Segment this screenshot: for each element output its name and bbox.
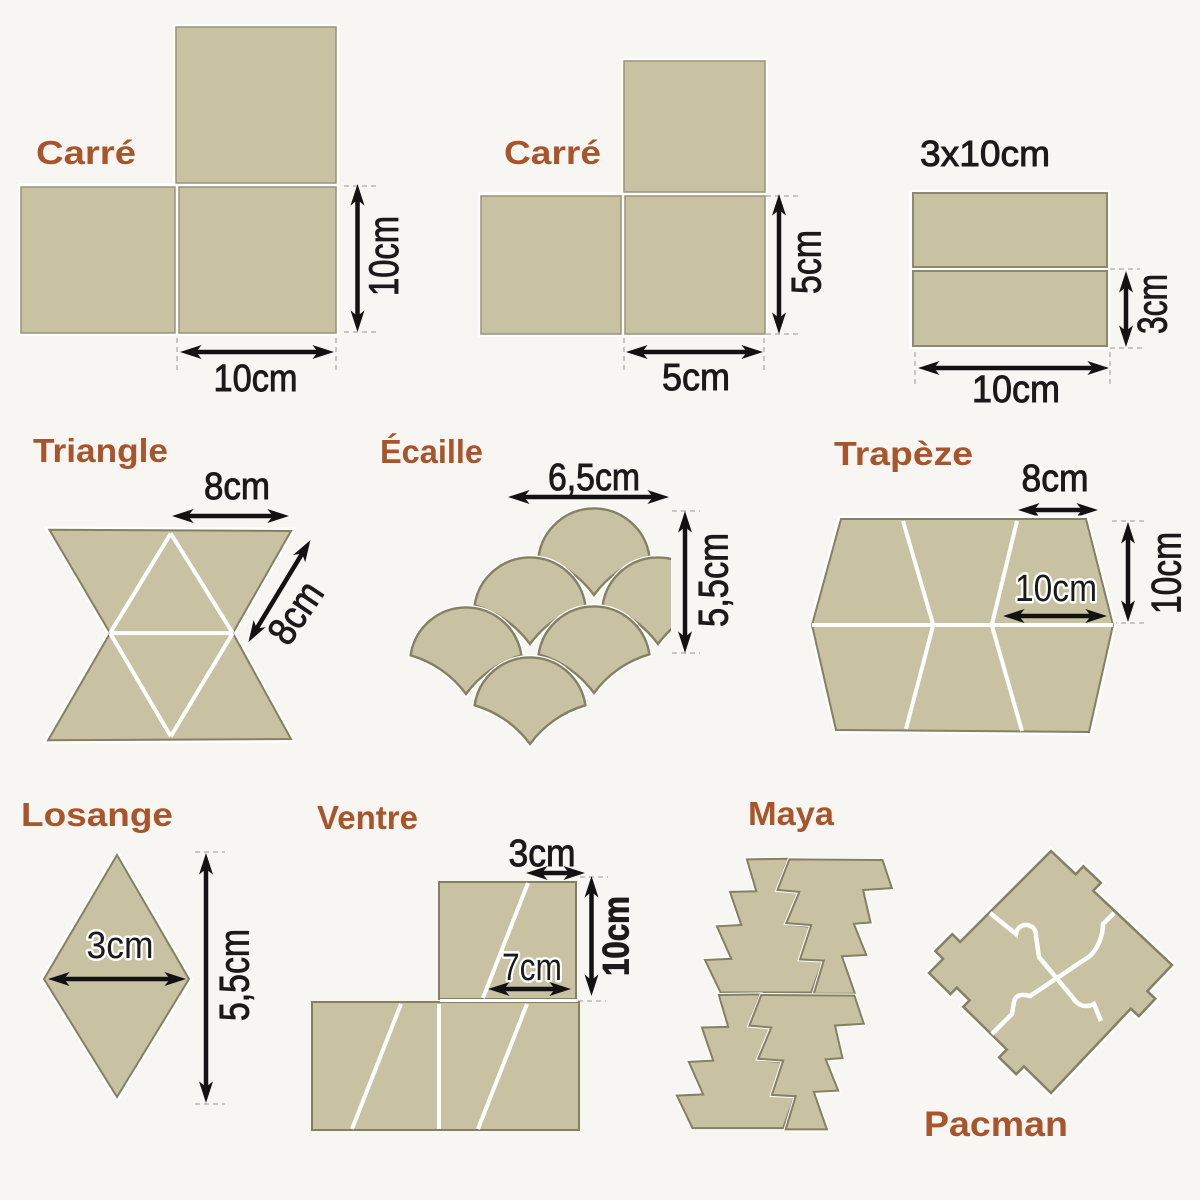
svg-text:5cm: 5cm	[783, 230, 830, 294]
svg-text:3x10cm: 3x10cm	[920, 133, 1050, 174]
svg-text:8cm: 8cm	[204, 466, 270, 508]
svg-text:Maya: Maya	[748, 795, 835, 832]
svg-text:3cm: 3cm	[87, 925, 154, 967]
svg-text:Losange: Losange	[21, 796, 173, 833]
svg-text:6,5cm: 6,5cm	[548, 457, 640, 499]
svg-text:Écaille: Écaille	[380, 433, 483, 470]
svg-text:8cm: 8cm	[1022, 458, 1089, 500]
svg-text:10cm: 10cm	[596, 896, 637, 976]
svg-text:10cm: 10cm	[1015, 568, 1097, 610]
svg-text:10cm: 10cm	[1143, 532, 1190, 614]
svg-text:Triangle: Triangle	[33, 432, 168, 469]
svg-text:3cm: 3cm	[1129, 274, 1176, 334]
svg-text:5cm: 5cm	[662, 357, 730, 399]
svg-text:5,5cm: 5,5cm	[211, 929, 258, 1021]
svg-text:Carré: Carré	[36, 134, 136, 171]
svg-text:7cm: 7cm	[502, 947, 562, 989]
svg-text:Ventre: Ventre	[317, 799, 418, 836]
svg-text:10cm: 10cm	[214, 358, 298, 400]
svg-text:10cm: 10cm	[972, 369, 1060, 411]
svg-text:10cm: 10cm	[360, 216, 407, 296]
svg-text:Pacman: Pacman	[924, 1105, 1068, 1144]
svg-text:Carré: Carré	[504, 134, 601, 171]
svg-text:Trapèze: Trapèze	[834, 435, 973, 472]
svg-text:5,5cm: 5,5cm	[690, 533, 737, 627]
